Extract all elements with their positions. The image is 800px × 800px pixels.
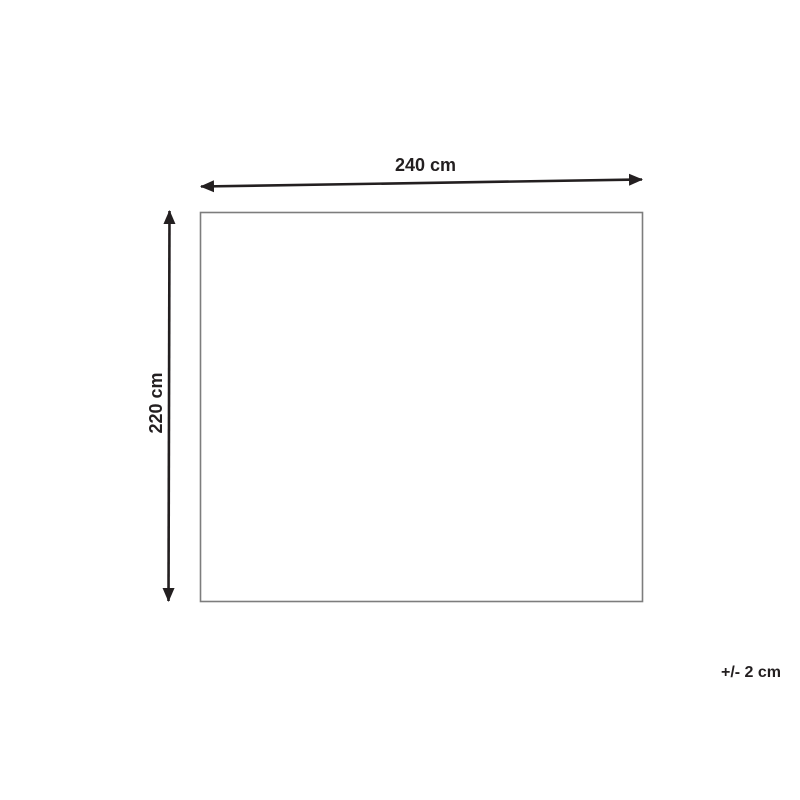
height-arrow [169,211,170,601]
width-arrow [201,180,642,187]
diagram-drawing [0,0,800,800]
height-dimension-label: 220 cm [146,333,168,473]
dimension-diagram: 240 cm 220 cm +/- 2 cm [0,0,800,800]
width-dimension-label: 240 cm [204,155,647,175]
tolerance-label: +/- 2 cm [721,663,781,683]
product-outline-rect [201,213,643,602]
